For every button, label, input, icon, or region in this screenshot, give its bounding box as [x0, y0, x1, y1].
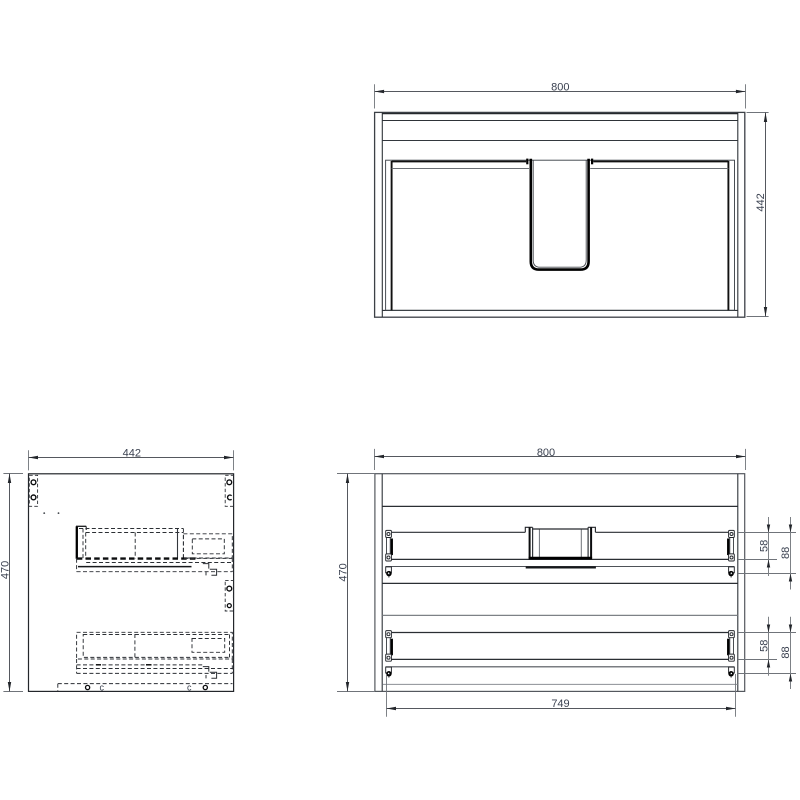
svg-text:58: 58	[758, 640, 770, 652]
svg-text:88: 88	[780, 547, 792, 559]
svg-text:749: 749	[551, 698, 569, 710]
svg-text:c: c	[187, 683, 192, 693]
svg-text:470: 470	[338, 563, 350, 581]
svg-text:800: 800	[537, 447, 555, 459]
svg-text:58: 58	[758, 540, 770, 552]
svg-text:88: 88	[780, 646, 792, 658]
svg-text:470: 470	[0, 561, 11, 579]
svg-text:c: c	[100, 683, 105, 693]
svg-text:442: 442	[755, 193, 767, 211]
svg-text:800: 800	[551, 82, 569, 94]
svg-text:442: 442	[123, 448, 141, 460]
